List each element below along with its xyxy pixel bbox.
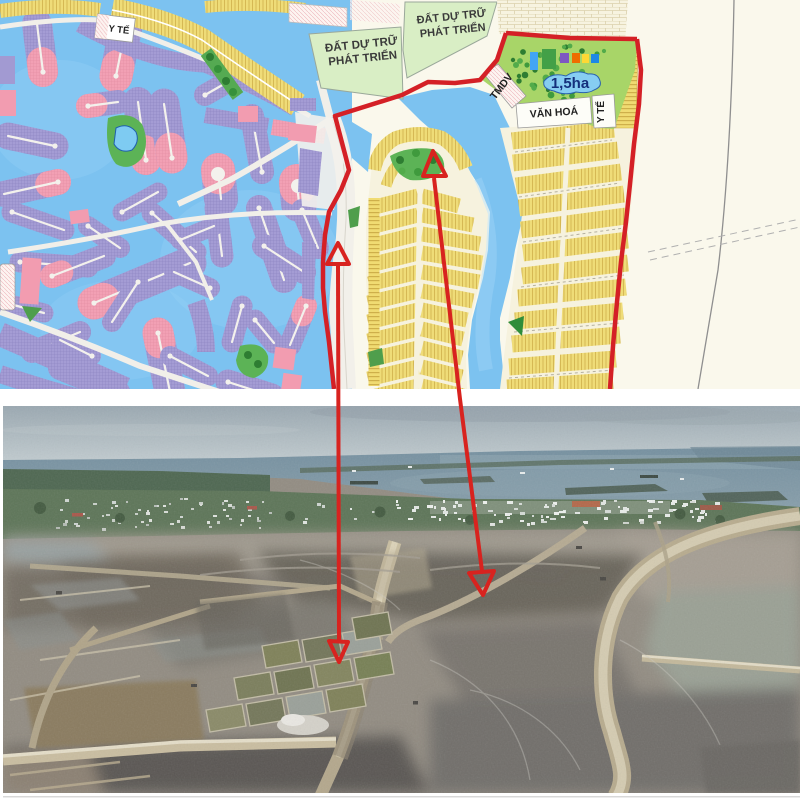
svg-text:1,5ha: 1,5ha	[551, 75, 590, 92]
svg-text:Y TẾ: Y TẾ	[594, 101, 607, 123]
